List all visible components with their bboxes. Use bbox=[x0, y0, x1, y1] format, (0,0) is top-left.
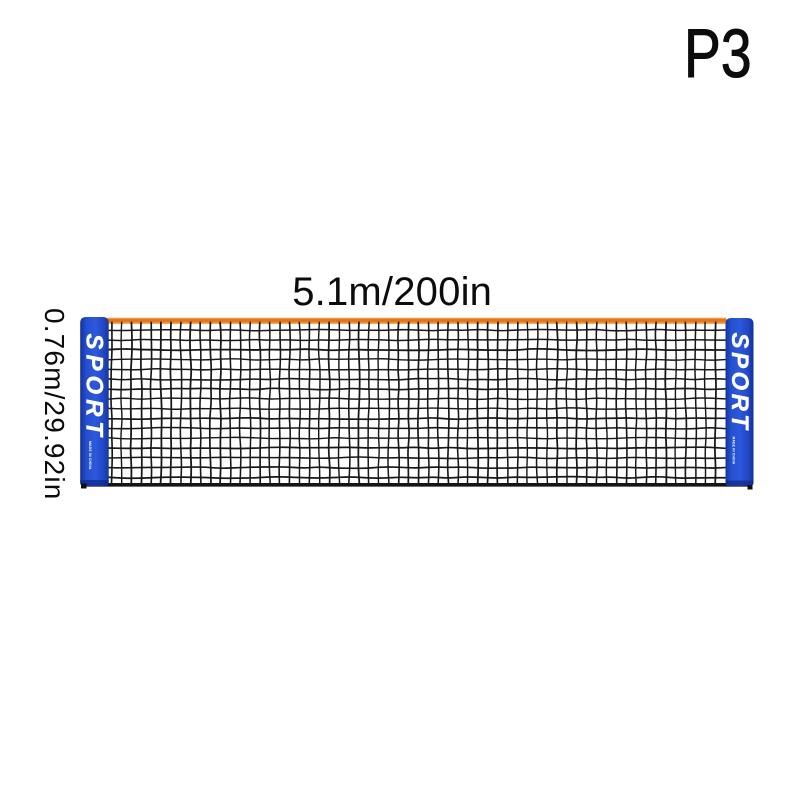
svg-text:MADE IN CHINA: MADE IN CHINA bbox=[731, 437, 735, 465]
svg-text:SPORT: SPORT bbox=[81, 334, 108, 441]
svg-text:MADE IN CHINA: MADE IN CHINA bbox=[88, 441, 92, 470]
svg-text:SPORT: SPORT bbox=[726, 333, 753, 433]
